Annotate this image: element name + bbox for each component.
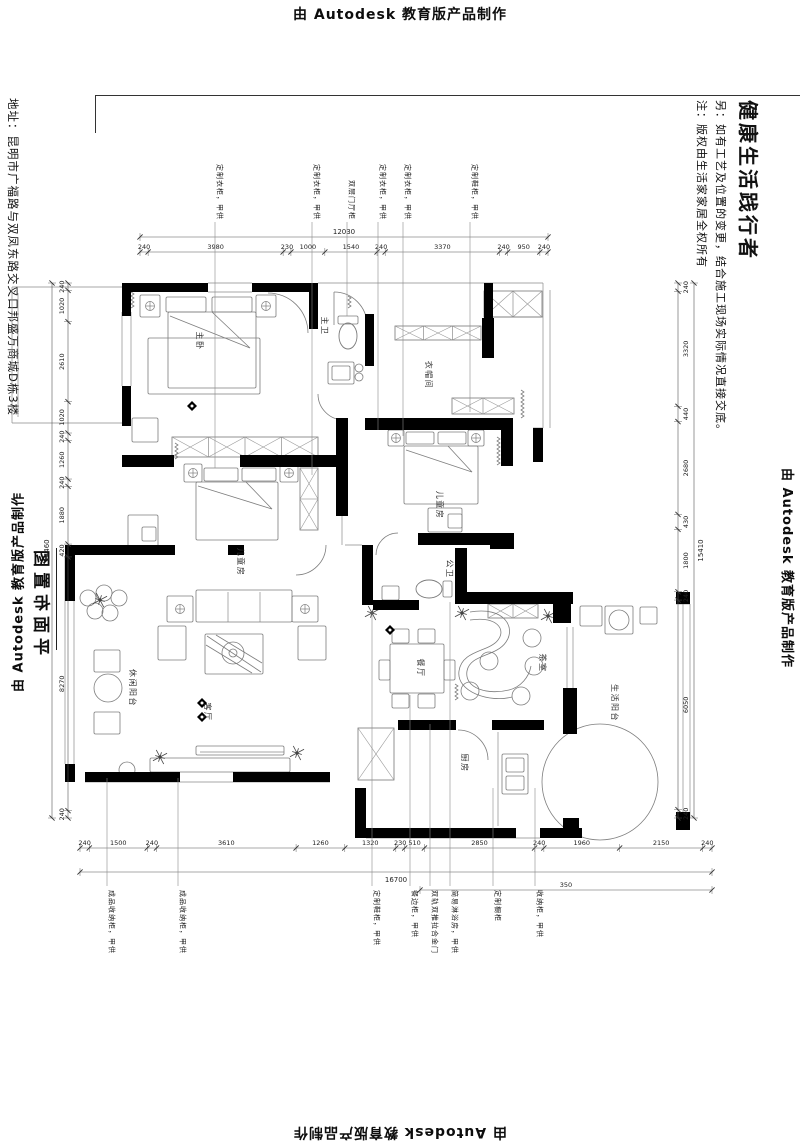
wall-segment — [336, 418, 348, 516]
wall-segment — [553, 597, 571, 623]
dimension-value: 2150 — [653, 839, 670, 847]
furniture-path — [467, 611, 531, 692]
callout-label: 定制衣柜，甲供 — [313, 164, 322, 220]
overall-dimension: 16700 — [385, 876, 407, 884]
dimension-value: 1020 — [58, 409, 66, 426]
fixture-ellipse — [416, 580, 442, 598]
furniture-outline — [640, 607, 657, 624]
wall-segment — [233, 772, 330, 782]
window-spring-icon — [348, 296, 351, 308]
furniture-outline — [406, 432, 434, 444]
dimension-value: 3320 — [682, 341, 690, 358]
furniture-outline — [332, 366, 350, 380]
furniture-outline — [196, 482, 278, 540]
dimension-value: 240 — [682, 808, 690, 820]
window-spring-icon — [497, 437, 500, 465]
furniture-path — [296, 545, 326, 575]
wall-segment — [492, 720, 544, 730]
furniture-path — [318, 394, 344, 420]
furniture-outline — [168, 312, 256, 388]
furniture-circle — [355, 373, 363, 381]
furniture-outline — [196, 590, 292, 622]
callout-label: 收纳柜，甲供 — [536, 890, 545, 938]
wall-segment — [252, 283, 318, 292]
wall-segment — [366, 828, 516, 838]
furniture-circle — [94, 674, 122, 702]
dimension-value: 420 — [58, 544, 66, 556]
furniture-outline — [94, 712, 120, 734]
wall-segment — [365, 418, 513, 430]
wall-segment — [482, 318, 494, 358]
room-label: 客厅 — [203, 703, 213, 722]
thin-lines-layer — [12, 283, 690, 838]
furniture-outline — [506, 758, 524, 772]
room-label: 生活阳台 — [610, 684, 620, 722]
dimension-value: 3370 — [434, 243, 451, 251]
furniture-outline — [212, 297, 252, 312]
furniture-outline — [444, 660, 455, 680]
wall-segment — [75, 545, 175, 555]
room-label: 公卫 — [445, 560, 454, 579]
furniture-circle — [355, 364, 363, 372]
dimension-value: 1320 — [362, 839, 379, 847]
callout-label: 成品收纳柜，甲供 — [179, 890, 188, 954]
wall-segment — [563, 818, 579, 830]
dimension-value: 8270 — [58, 676, 66, 693]
plant-icon — [290, 746, 304, 760]
furniture-circle — [96, 585, 112, 601]
furniture-outline — [196, 746, 284, 755]
furniture-outline — [158, 626, 186, 660]
wall-segment — [240, 455, 344, 467]
overall-dimension: 15410 — [697, 539, 705, 561]
furniture-outline — [418, 629, 435, 643]
floor-plan-drawing: 2403980230100015402403370240950240120302… — [0, 0, 800, 1143]
room-label: 厨房 — [460, 754, 470, 773]
dimension-value: 240 — [58, 808, 66, 820]
furniture-path — [198, 482, 272, 509]
dimension-value: 1000 — [300, 243, 317, 251]
room-label: 休闲阳台 — [128, 669, 138, 707]
furniture-path — [376, 533, 398, 555]
furniture-outline — [166, 297, 206, 312]
dimension-value: 240 — [58, 280, 66, 292]
dimension-value: 240 — [58, 476, 66, 488]
dimension-value: 2850 — [471, 839, 488, 847]
wall-segment — [309, 283, 318, 329]
callout-label: 定制衣柜，甲供 — [216, 164, 225, 220]
dimension-value: 3610 — [218, 839, 235, 847]
dimension-value: 2610 — [58, 353, 66, 370]
furniture-outline — [580, 606, 602, 626]
callout-label: 定制衣柜，甲供 — [404, 164, 413, 220]
furniture-outline — [242, 468, 276, 481]
callout-label: 双层门厅柜 — [348, 180, 357, 220]
wall-segment — [533, 428, 543, 462]
furniture-outline — [428, 508, 462, 532]
callout-label: 定制鞋柜，甲供 — [373, 890, 382, 946]
dimension-value: 1260 — [312, 839, 329, 847]
wall-segment — [484, 283, 493, 319]
furniture-circle — [523, 629, 541, 647]
wall-segment — [122, 386, 131, 426]
wall-segment — [373, 600, 419, 610]
room-label: 衣帽间 — [424, 361, 434, 390]
room-label: 儿童房 — [236, 548, 246, 577]
callout-label: 定制鞋柜，甲供 — [471, 164, 480, 220]
window-spring-icon — [455, 684, 458, 700]
callout-label: 定制橱柜 — [494, 890, 503, 922]
furniture-path — [406, 446, 472, 472]
furniture-path — [170, 312, 250, 348]
dimension-value: 1540 — [343, 243, 360, 251]
wall-segment — [65, 764, 75, 782]
dimension-value: 1260 — [58, 451, 66, 468]
furniture-outline — [150, 758, 290, 772]
dimension-value: 240 — [682, 281, 690, 293]
wall-segment — [490, 533, 514, 549]
furniture-outline — [392, 629, 409, 643]
wall-segment — [398, 720, 456, 730]
furniture-outline — [204, 468, 238, 481]
dimension-value: 350 — [560, 881, 572, 889]
plant-icon — [455, 606, 469, 620]
callout-label: 双轨双推拉合金门 — [431, 890, 440, 954]
room-label: 儿童房 — [435, 491, 445, 520]
furniture-outline — [418, 694, 435, 708]
dimension-value: 230 — [281, 243, 293, 251]
furniture-circle — [512, 687, 530, 705]
callout-label: 定制衣柜，甲供 — [379, 164, 388, 220]
furniture-outline — [132, 418, 158, 442]
overall-dimension: 12030 — [333, 228, 355, 236]
callout-label: 成品收纳柜，甲供 — [108, 890, 117, 954]
furniture-path — [268, 293, 308, 333]
window-spring-icon — [521, 390, 524, 418]
room-label: 餐厅 — [416, 659, 425, 678]
wall-segment — [355, 788, 366, 838]
wall-segment — [365, 314, 374, 366]
window-spring-icon — [131, 292, 134, 308]
furniture-circle — [102, 605, 118, 621]
furniture-circle — [609, 610, 629, 630]
room-label: 茶室 — [538, 654, 548, 673]
dimension-value: 240 — [138, 243, 150, 251]
dimension-value: 240 — [78, 839, 90, 847]
dimension-value: 950 — [518, 243, 530, 251]
dimension-value: 1880 — [58, 507, 66, 524]
wall-segment — [122, 283, 208, 292]
furniture-outline — [382, 586, 399, 600]
dimension-value: 240 — [682, 590, 690, 602]
furniture-outline — [379, 660, 390, 680]
dimension-value: 1800 — [682, 552, 690, 569]
furniture-path — [334, 292, 367, 325]
furniture-outline — [392, 694, 409, 708]
furniture-outline — [438, 432, 466, 444]
dimension-value: 3980 — [207, 243, 224, 251]
dimension-value: 240 — [701, 839, 713, 847]
furniture-outline — [142, 527, 156, 541]
furniture-path — [207, 636, 261, 672]
dimension-value: 6050 — [682, 697, 690, 714]
callout-label: 简易淋浴房，甲供 — [451, 890, 460, 954]
furniture-outline — [298, 626, 326, 660]
furniture-circle — [542, 724, 658, 840]
wall-segment — [122, 455, 174, 467]
callout-label: 餐边柜，甲供 — [411, 890, 420, 938]
overall-dimension: 14460 — [43, 539, 51, 561]
wall-segment — [65, 545, 75, 601]
furniture-circle — [111, 590, 127, 606]
room-label: 主卫 — [320, 317, 330, 336]
furniture-outline — [506, 776, 524, 790]
plant-icon — [541, 609, 555, 623]
dimension-value: 440 — [682, 408, 690, 420]
wall-segment — [362, 545, 373, 605]
furniture-outline — [94, 650, 120, 672]
dimension-value: 430 — [682, 516, 690, 528]
room-label: 主卧 — [195, 332, 205, 351]
dimension-value: 1020 — [58, 298, 66, 315]
dimension-value: 1500 — [110, 839, 127, 847]
furniture-path — [459, 619, 512, 698]
furniture-circle — [87, 603, 103, 619]
dimension-value: 240 — [375, 243, 387, 251]
dimension-value: 230 — [394, 839, 406, 847]
dimension-value: 2680 — [682, 460, 690, 477]
wall-segment — [85, 772, 180, 782]
furniture-path — [206, 645, 252, 673]
fixture-ellipse — [339, 323, 357, 349]
dimensions-layer: 2403980230100015402403370240950240120302… — [43, 228, 715, 894]
dimension-value: 240 — [538, 243, 550, 251]
wall-segment — [563, 688, 577, 734]
furniture-outline — [443, 581, 452, 597]
plant-icon — [153, 750, 167, 764]
dimension-value: 1960 — [573, 839, 590, 847]
furniture-outline — [448, 514, 462, 528]
dimension-value: 240 — [497, 243, 509, 251]
dimension-value: 240 — [58, 430, 66, 442]
wall-segment — [501, 418, 513, 466]
wall-segment — [418, 533, 498, 545]
dimension-value: 240 — [146, 839, 158, 847]
furniture-circle — [480, 652, 498, 670]
wall-segment — [122, 292, 131, 316]
